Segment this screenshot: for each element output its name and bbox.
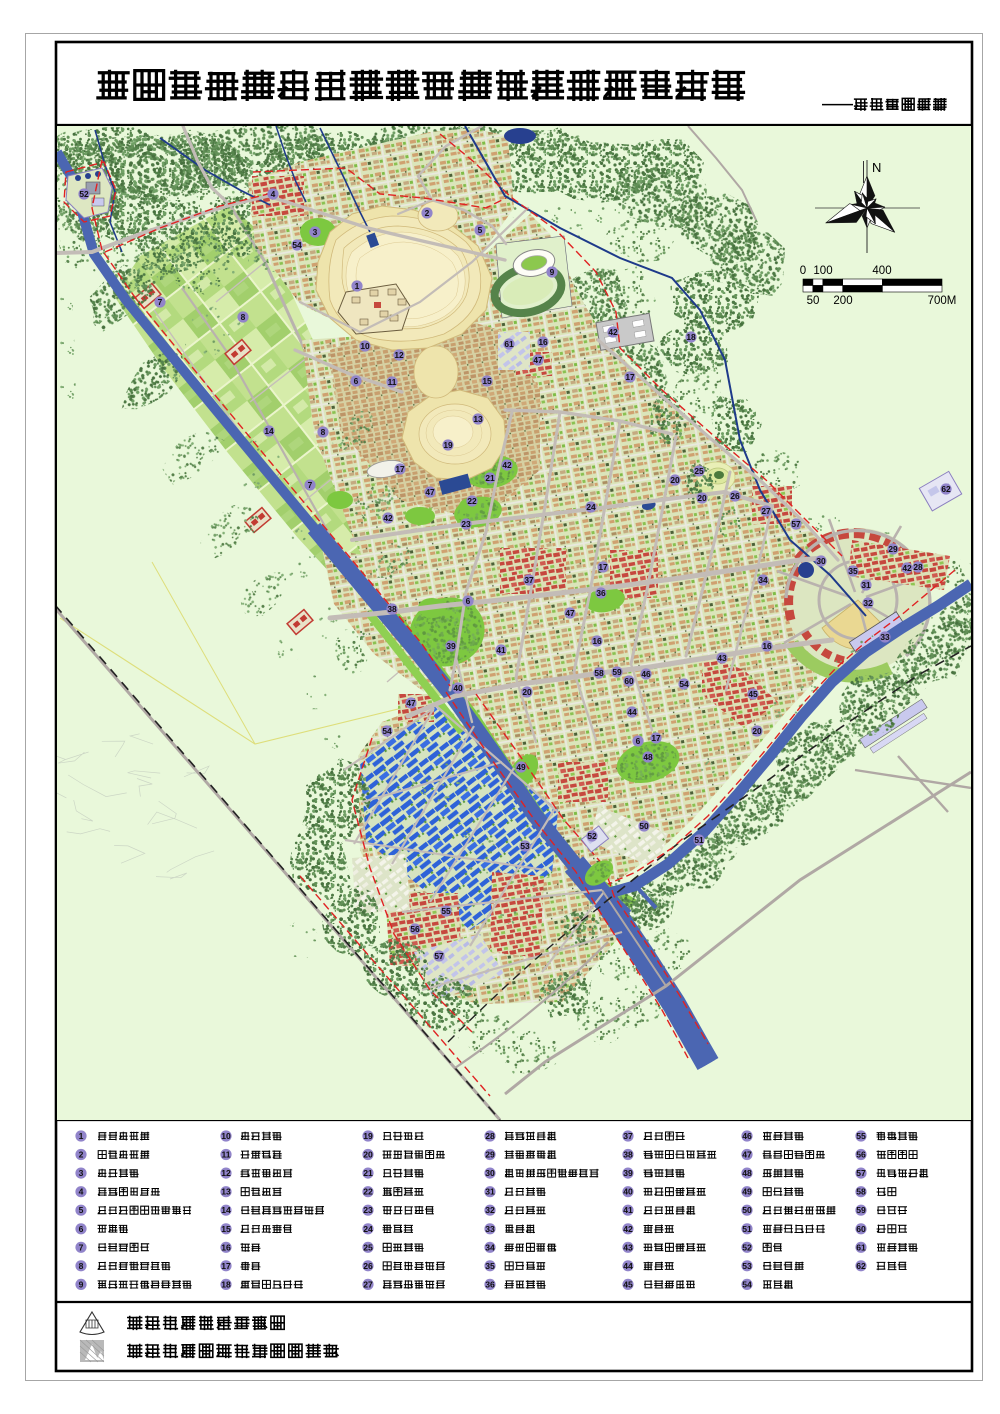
svg-text:43: 43 [623, 1242, 633, 1252]
svg-text:18: 18 [221, 1279, 231, 1289]
svg-text:26: 26 [363, 1261, 373, 1271]
svg-text:15: 15 [221, 1224, 231, 1234]
svg-text:40: 40 [453, 683, 463, 693]
svg-text:52: 52 [587, 831, 597, 841]
svg-text:27: 27 [761, 506, 771, 516]
svg-text:9: 9 [79, 1279, 84, 1289]
svg-text:6: 6 [354, 376, 359, 386]
svg-text:40: 40 [623, 1187, 633, 1197]
svg-text:3: 3 [79, 1168, 84, 1178]
svg-text:16: 16 [538, 337, 548, 347]
svg-text:30: 30 [816, 556, 826, 566]
svg-text:20: 20 [752, 726, 762, 736]
svg-text:47: 47 [406, 698, 416, 708]
svg-text:52: 52 [742, 1242, 752, 1252]
svg-text:10: 10 [221, 1131, 231, 1141]
svg-text:47: 47 [742, 1150, 752, 1160]
svg-text:36: 36 [596, 588, 606, 598]
svg-text:14: 14 [221, 1205, 231, 1215]
svg-text:42: 42 [383, 513, 393, 523]
svg-text:59: 59 [856, 1205, 866, 1215]
svg-text:46: 46 [742, 1131, 752, 1141]
svg-text:55: 55 [441, 906, 451, 916]
svg-text:17: 17 [395, 464, 405, 474]
svg-text:60: 60 [856, 1224, 866, 1234]
svg-text:42: 42 [608, 327, 618, 337]
svg-text:47: 47 [565, 608, 575, 618]
svg-text:41: 41 [623, 1205, 633, 1215]
svg-text:16: 16 [592, 636, 602, 646]
svg-text:12: 12 [394, 350, 404, 360]
svg-text:14: 14 [264, 426, 274, 436]
svg-text:5: 5 [478, 225, 483, 235]
svg-text:49: 49 [516, 762, 526, 772]
svg-text:26: 26 [730, 491, 740, 501]
svg-text:16: 16 [762, 641, 772, 651]
svg-text:6: 6 [79, 1224, 84, 1234]
svg-text:5: 5 [79, 1205, 84, 1215]
svg-text:34: 34 [758, 575, 768, 585]
svg-text:50: 50 [639, 821, 649, 831]
svg-text:13: 13 [473, 414, 483, 424]
svg-text:57: 57 [791, 519, 801, 529]
svg-text:38: 38 [623, 1150, 633, 1160]
svg-text:19: 19 [363, 1131, 373, 1141]
svg-text:20: 20 [670, 475, 680, 485]
svg-text:17: 17 [221, 1261, 231, 1271]
svg-text:45: 45 [748, 689, 758, 699]
svg-text:39: 39 [623, 1168, 633, 1178]
svg-text:12: 12 [221, 1168, 231, 1178]
svg-text:55: 55 [856, 1131, 866, 1141]
svg-text:46: 46 [641, 669, 651, 679]
svg-text:53: 53 [520, 841, 530, 851]
svg-text:2: 2 [425, 208, 430, 218]
svg-text:7: 7 [79, 1242, 84, 1252]
svg-text:0: 0 [800, 265, 806, 277]
svg-text:58: 58 [856, 1187, 866, 1197]
svg-text:49: 49 [742, 1187, 752, 1197]
svg-text:48: 48 [643, 752, 653, 762]
svg-text:33: 33 [880, 632, 890, 642]
svg-text:3: 3 [313, 227, 318, 237]
svg-text:41: 41 [496, 645, 506, 655]
svg-text:60: 60 [624, 676, 634, 686]
svg-text:4: 4 [79, 1187, 84, 1197]
svg-text:19: 19 [443, 440, 453, 450]
svg-text:23: 23 [461, 519, 471, 529]
svg-text:8: 8 [79, 1261, 84, 1271]
svg-text:15: 15 [482, 376, 492, 386]
svg-text:1: 1 [79, 1131, 84, 1141]
svg-text:59: 59 [612, 667, 622, 677]
svg-text:56: 56 [856, 1150, 866, 1160]
svg-text:17: 17 [651, 733, 661, 743]
svg-text:36: 36 [485, 1279, 495, 1289]
svg-text:22: 22 [363, 1187, 373, 1197]
svg-text:1: 1 [355, 281, 360, 291]
svg-text:200: 200 [833, 295, 852, 307]
svg-text:57: 57 [856, 1168, 866, 1178]
svg-text:33: 33 [485, 1224, 495, 1234]
svg-text:32: 32 [863, 598, 873, 608]
svg-text:N: N [872, 160, 881, 175]
svg-text:51: 51 [742, 1224, 752, 1234]
svg-text:32: 32 [485, 1205, 495, 1215]
svg-text:700M: 700M [928, 295, 957, 307]
svg-text:42: 42 [502, 460, 512, 470]
svg-text:10: 10 [360, 341, 370, 351]
svg-text:30: 30 [485, 1168, 495, 1178]
svg-text:54: 54 [679, 679, 689, 689]
svg-text:21: 21 [363, 1168, 373, 1178]
svg-text:31: 31 [485, 1187, 495, 1197]
svg-text:23: 23 [363, 1205, 373, 1215]
svg-text:8: 8 [241, 312, 246, 322]
svg-text:42: 42 [623, 1224, 633, 1234]
svg-text:44: 44 [623, 1261, 633, 1271]
svg-text:29: 29 [888, 544, 898, 554]
svg-text:25: 25 [363, 1242, 373, 1252]
svg-text:62: 62 [941, 484, 951, 494]
svg-text:24: 24 [363, 1224, 373, 1234]
svg-text:57: 57 [434, 951, 444, 961]
svg-text:17: 17 [625, 372, 635, 382]
svg-text:62: 62 [856, 1261, 866, 1271]
svg-text:11: 11 [221, 1150, 230, 1160]
svg-text:34: 34 [485, 1242, 495, 1252]
svg-text:31: 31 [861, 580, 871, 590]
svg-text:43: 43 [717, 653, 727, 663]
svg-text:61: 61 [856, 1242, 866, 1252]
svg-text:7: 7 [158, 297, 163, 307]
svg-text:20: 20 [697, 493, 707, 503]
svg-text:38: 38 [387, 604, 397, 614]
svg-text:47: 47 [533, 355, 543, 365]
svg-text:54: 54 [292, 240, 302, 250]
svg-text:22: 22 [467, 496, 477, 506]
svg-text:56: 56 [410, 924, 420, 934]
svg-text:52: 52 [79, 189, 89, 199]
svg-text:29: 29 [485, 1150, 495, 1160]
svg-text:17: 17 [598, 562, 608, 572]
svg-text:50: 50 [807, 295, 820, 307]
svg-text:20: 20 [363, 1150, 373, 1160]
svg-text:28: 28 [485, 1131, 495, 1141]
svg-text:47: 47 [425, 487, 435, 497]
svg-text:9: 9 [550, 267, 555, 277]
svg-text:6: 6 [466, 596, 471, 606]
svg-text:2: 2 [79, 1150, 84, 1160]
svg-text:20: 20 [522, 687, 532, 697]
svg-text:16: 16 [221, 1242, 231, 1252]
svg-text:6: 6 [636, 736, 641, 746]
svg-text:54: 54 [742, 1279, 752, 1289]
svg-text:37: 37 [524, 575, 534, 585]
svg-text:18: 18 [686, 332, 696, 342]
svg-text:400: 400 [872, 265, 891, 277]
svg-text:48: 48 [742, 1168, 752, 1178]
svg-text:42: 42 [902, 563, 912, 573]
svg-text:25: 25 [694, 466, 704, 476]
svg-text:21: 21 [485, 473, 495, 483]
svg-text:58: 58 [594, 668, 604, 678]
svg-text:45: 45 [623, 1279, 633, 1289]
svg-text:61: 61 [504, 339, 514, 349]
svg-text:54: 54 [382, 726, 392, 736]
svg-text:39: 39 [446, 641, 456, 651]
svg-text:50: 50 [742, 1205, 752, 1215]
svg-text:27: 27 [363, 1279, 373, 1289]
svg-text:35: 35 [848, 566, 858, 576]
svg-text:13: 13 [221, 1187, 231, 1197]
svg-text:44: 44 [627, 707, 637, 717]
svg-text:35: 35 [485, 1261, 495, 1271]
svg-text:53: 53 [742, 1261, 752, 1271]
svg-text:100: 100 [813, 265, 832, 277]
svg-text:7: 7 [308, 480, 313, 490]
svg-text:8: 8 [321, 427, 326, 437]
svg-text:4: 4 [271, 189, 276, 199]
svg-text:37: 37 [623, 1131, 633, 1141]
svg-text:11: 11 [388, 377, 397, 387]
svg-text:51: 51 [694, 835, 704, 845]
svg-text:28: 28 [913, 562, 923, 572]
svg-text:24: 24 [586, 502, 596, 512]
